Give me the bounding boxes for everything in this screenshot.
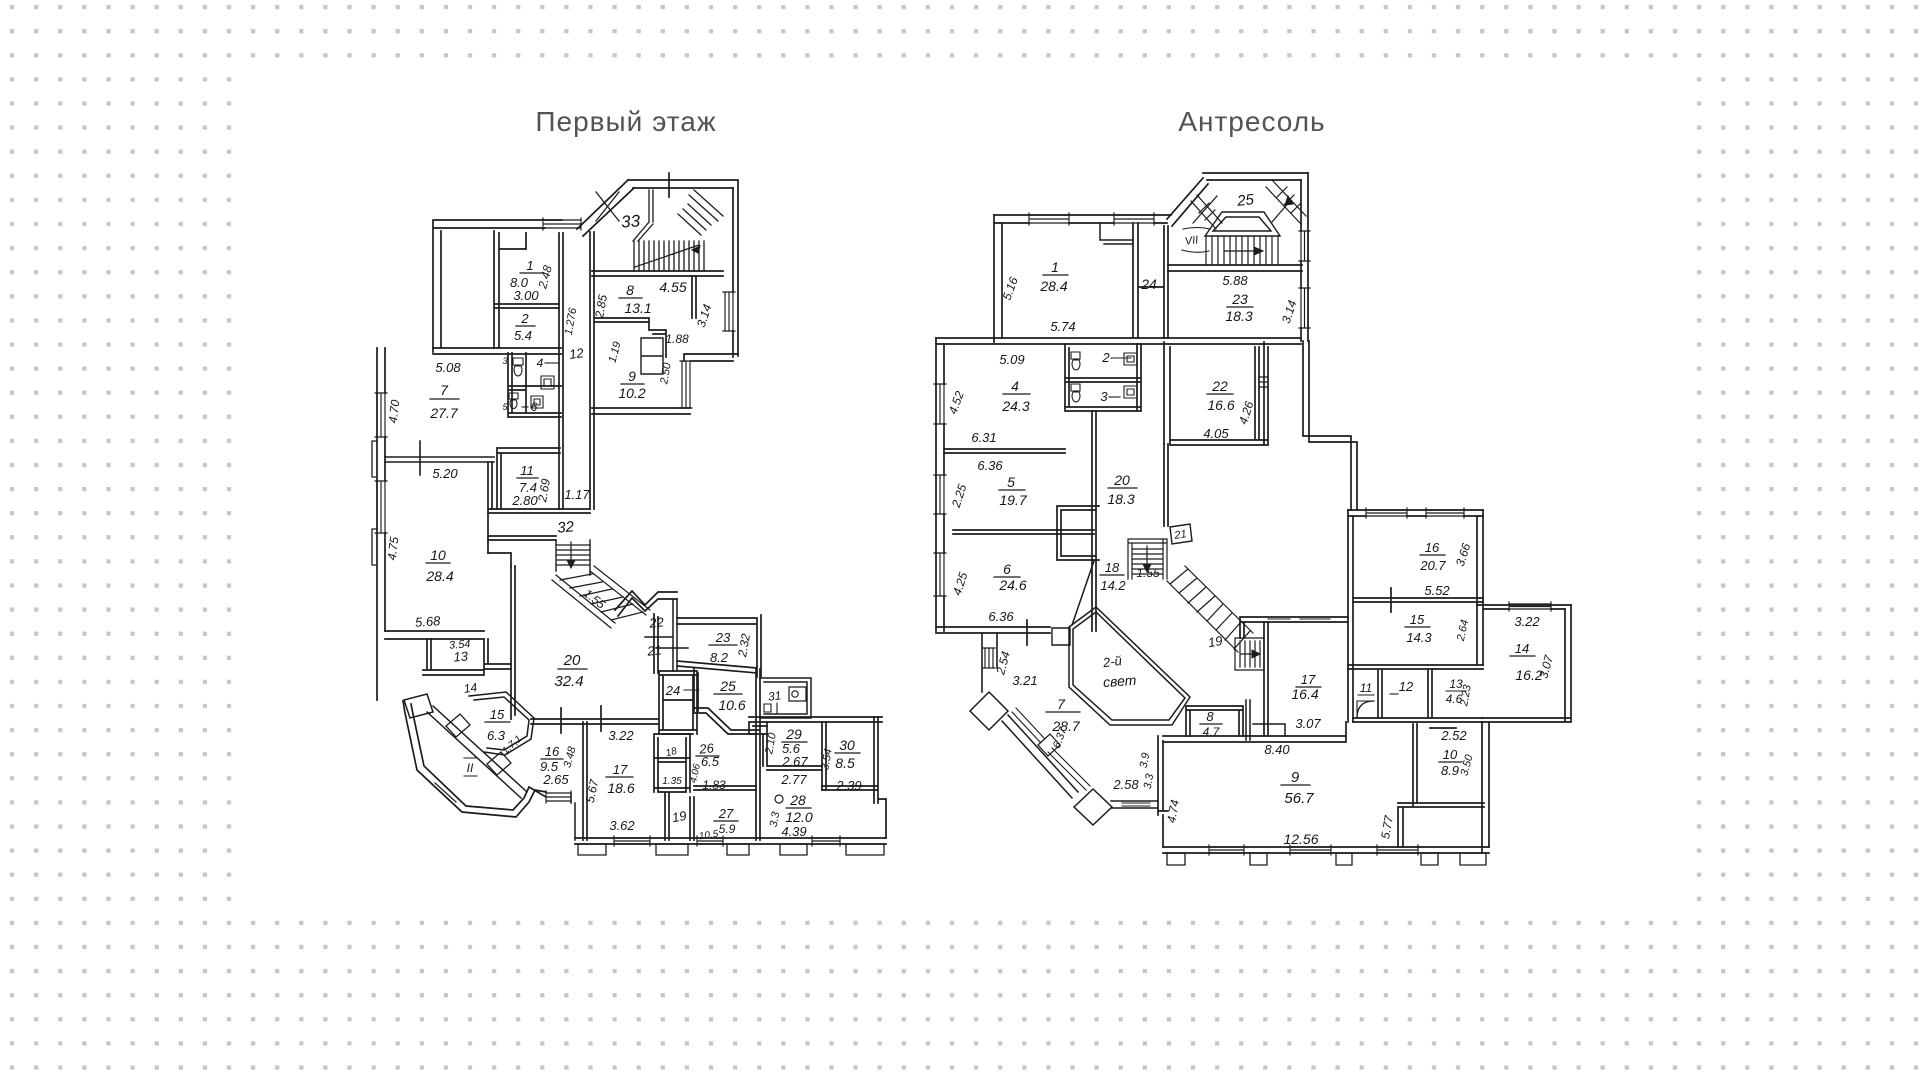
svg-text:15: 15 (490, 707, 505, 722)
svg-text:18.3: 18.3 (1225, 308, 1252, 324)
svg-text:13: 13 (453, 648, 469, 664)
svg-text:56.7: 56.7 (1284, 790, 1314, 807)
svg-text:30: 30 (839, 737, 855, 753)
svg-text:Первый этаж: Первый этаж (535, 106, 716, 137)
svg-text:21: 21 (646, 642, 663, 659)
svg-text:12.56: 12.56 (1283, 831, 1318, 847)
svg-text:31: 31 (767, 688, 782, 703)
svg-text:7: 7 (1057, 696, 1066, 712)
svg-text:25: 25 (1235, 191, 1255, 210)
svg-text:5.52: 5.52 (1424, 583, 1450, 598)
svg-text:33: 33 (621, 211, 642, 231)
svg-text:6.31: 6.31 (971, 430, 996, 445)
svg-text:21: 21 (1173, 528, 1188, 542)
svg-text:23: 23 (1231, 291, 1248, 307)
svg-text:4.55: 4.55 (659, 279, 686, 295)
svg-text:2.58: 2.58 (1112, 777, 1139, 792)
svg-text:24.3: 24.3 (1001, 398, 1029, 414)
svg-text:14.2: 14.2 (1100, 578, 1126, 593)
svg-text:7: 7 (440, 382, 449, 398)
svg-text:1: 1 (1051, 259, 1059, 275)
svg-text:14: 14 (463, 680, 478, 696)
svg-text:6.3: 6.3 (487, 728, 506, 743)
svg-text:5: 5 (1007, 474, 1015, 490)
svg-text:8.5: 8.5 (835, 755, 855, 771)
svg-text:4.70: 4.70 (386, 399, 403, 424)
svg-text:8: 8 (626, 282, 634, 298)
svg-text:5.20: 5.20 (432, 466, 458, 481)
svg-text:3.62: 3.62 (609, 818, 635, 833)
svg-text:10: 10 (1443, 747, 1458, 762)
svg-text:4.39: 4.39 (781, 824, 806, 839)
svg-text:5.08: 5.08 (435, 360, 461, 375)
svg-text:Антресоль: Антресоль (1178, 106, 1325, 137)
svg-text:11: 11 (1360, 681, 1372, 695)
svg-text:2.39: 2.39 (835, 778, 861, 793)
svg-text:10: 10 (430, 547, 446, 563)
svg-text:25: 25 (719, 678, 736, 694)
svg-text:2: 2 (520, 311, 529, 326)
svg-text:6.5: 6.5 (701, 754, 720, 769)
svg-text:20: 20 (1113, 472, 1130, 488)
svg-text:VII: VII (1184, 234, 1199, 248)
svg-text:5.09: 5.09 (999, 352, 1024, 367)
svg-text:10.6: 10.6 (718, 697, 745, 713)
svg-text:28: 28 (789, 792, 806, 808)
svg-text:32.4: 32.4 (554, 673, 583, 690)
svg-text:1.17: 1.17 (564, 487, 590, 502)
svg-text:6.36: 6.36 (977, 458, 1003, 473)
svg-text:9: 9 (628, 368, 636, 384)
svg-text:4: 4 (537, 356, 544, 370)
svg-text:II: II (467, 761, 474, 775)
svg-text:15: 15 (1410, 612, 1425, 627)
svg-text:4.7: 4.7 (1203, 725, 1221, 739)
svg-text:5.74: 5.74 (1050, 319, 1075, 334)
svg-text:2.77: 2.77 (780, 772, 807, 787)
svg-text:1: 1 (526, 258, 533, 273)
svg-text:20: 20 (563, 652, 581, 669)
svg-text:20.7: 20.7 (1419, 558, 1446, 573)
svg-text:11: 11 (520, 463, 534, 478)
svg-text:13.1: 13.1 (624, 300, 651, 316)
svg-text:5.88: 5.88 (1222, 273, 1248, 288)
svg-text:3.22: 3.22 (1514, 614, 1540, 629)
svg-text:свет: свет (1102, 672, 1137, 690)
svg-text:2.65: 2.65 (542, 772, 569, 787)
svg-text:3.22: 3.22 (608, 728, 634, 743)
svg-text:5.9: 5.9 (719, 822, 736, 836)
svg-text:24: 24 (1140, 276, 1157, 292)
svg-text:17: 17 (1301, 672, 1316, 687)
svg-text:22: 22 (648, 614, 666, 631)
svg-text:6: 6 (531, 400, 538, 414)
svg-text:18: 18 (1105, 560, 1120, 575)
svg-text:16: 16 (1425, 540, 1440, 555)
svg-text:24.6: 24.6 (998, 577, 1026, 593)
svg-text:22: 22 (1211, 378, 1228, 394)
svg-text:8.2: 8.2 (710, 650, 729, 665)
svg-text:14: 14 (1515, 641, 1529, 656)
svg-text:18.3: 18.3 (1107, 491, 1134, 507)
svg-text:2: 2 (1101, 350, 1110, 365)
svg-text:28.4: 28.4 (1039, 278, 1067, 294)
svg-text:12: 12 (1399, 679, 1414, 694)
svg-text:1.35: 1.35 (662, 776, 682, 787)
svg-text:14.3: 14.3 (1406, 630, 1432, 645)
svg-text:3: 3 (502, 356, 507, 366)
svg-text:3: 3 (1100, 389, 1108, 404)
svg-text:5.68: 5.68 (415, 613, 442, 630)
svg-text:9: 9 (1291, 769, 1300, 786)
svg-text:3.07: 3.07 (1295, 716, 1321, 731)
svg-text:27: 27 (718, 806, 734, 821)
svg-text:10.2: 10.2 (618, 385, 645, 401)
svg-text:2.52: 2.52 (1440, 728, 1467, 743)
svg-text:8.9: 8.9 (1441, 763, 1459, 778)
svg-text:19: 19 (671, 808, 688, 825)
svg-text:23: 23 (715, 630, 731, 645)
svg-text:6.36: 6.36 (988, 609, 1014, 624)
svg-text:3.00: 3.00 (513, 288, 539, 303)
svg-text:17: 17 (613, 762, 628, 777)
svg-text:19: 19 (1207, 633, 1224, 650)
svg-text:5.4: 5.4 (514, 328, 532, 343)
svg-text:29: 29 (785, 726, 802, 742)
svg-text:18.6: 18.6 (607, 780, 634, 796)
svg-text:12.0: 12.0 (785, 809, 812, 825)
svg-text:4.05: 4.05 (1203, 426, 1229, 441)
svg-text:8.40: 8.40 (1264, 742, 1290, 757)
svg-text:24: 24 (665, 683, 680, 698)
svg-text:1.88: 1.88 (665, 332, 689, 346)
svg-text:2-й: 2-й (1101, 653, 1123, 671)
svg-text:4: 4 (1011, 378, 1019, 394)
svg-text:19.7: 19.7 (999, 492, 1027, 508)
svg-text:4.75: 4.75 (385, 536, 402, 561)
svg-text:3.21: 3.21 (1012, 673, 1037, 688)
svg-text:16.6: 16.6 (1207, 397, 1234, 413)
svg-text:12: 12 (568, 345, 585, 362)
svg-text:16.4: 16.4 (1291, 686, 1318, 702)
svg-text:32: 32 (557, 518, 576, 536)
svg-text:27.7: 27.7 (429, 405, 458, 421)
svg-text:28.4: 28.4 (425, 568, 453, 584)
svg-text:16: 16 (545, 744, 560, 759)
svg-text:2.67: 2.67 (781, 754, 808, 769)
svg-text:6: 6 (1003, 561, 1011, 577)
svg-text:8: 8 (1206, 709, 1214, 724)
svg-text:1.55: 1.55 (1136, 566, 1160, 580)
